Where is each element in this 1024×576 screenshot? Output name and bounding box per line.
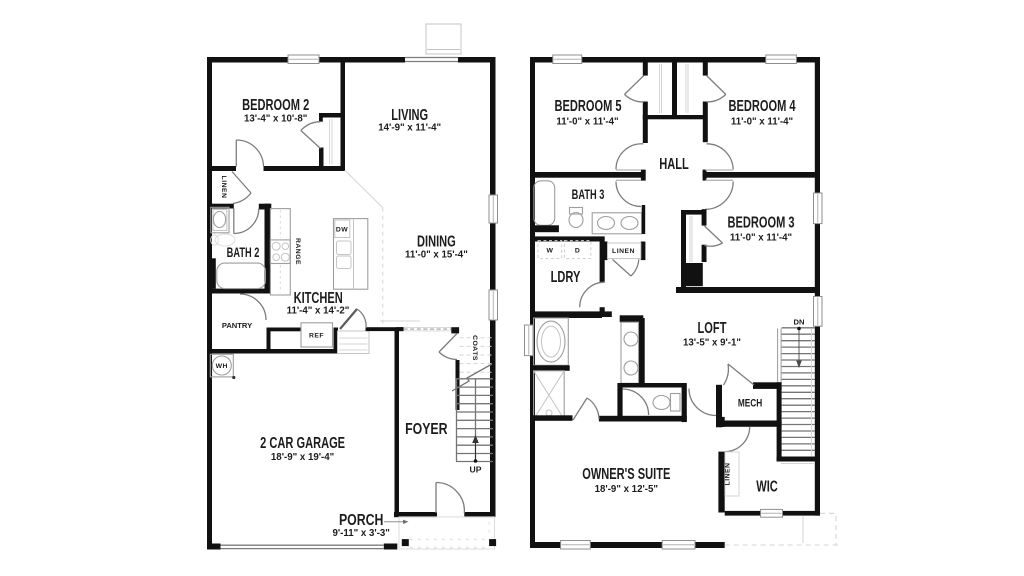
svg-text:FOYER: FOYER (405, 420, 447, 438)
svg-text:PORCH: PORCH (339, 511, 383, 529)
svg-text:18'-9" x 12'-5": 18'-9" x 12'-5" (595, 484, 658, 495)
svg-text:WIC: WIC (756, 478, 778, 495)
svg-text:HALL: HALL (659, 155, 689, 172)
svg-text:LINEN: LINEN (220, 176, 227, 199)
svg-text:18'-9" x 19'-4": 18'-9" x 19'-4" (271, 452, 334, 463)
svg-text:LOFT: LOFT (698, 319, 728, 336)
svg-text:D: D (575, 248, 580, 255)
svg-text:BEDROOM 5: BEDROOM 5 (554, 97, 622, 114)
svg-text:BATH 2: BATH 2 (227, 244, 260, 261)
svg-text:11'-0" x 11'-4": 11'-0" x 11'-4" (730, 233, 792, 244)
svg-text:13'-4" x 10'-8": 13'-4" x 10'-8" (244, 113, 307, 124)
svg-text:11'-0" x 11'-4": 11'-0" x 11'-4" (731, 117, 793, 128)
svg-text:BEDROOM 3: BEDROOM 3 (727, 214, 794, 231)
svg-text:UP: UP (470, 465, 482, 475)
svg-text:11'-0" x 15'-4": 11'-0" x 15'-4" (405, 250, 468, 261)
svg-text:W: W (546, 248, 553, 255)
svg-text:BEDROOM 2: BEDROOM 2 (242, 96, 309, 113)
svg-text:DW: DW (336, 227, 348, 234)
svg-text:REF: REF (309, 333, 324, 340)
svg-text:BATH 3: BATH 3 (572, 186, 605, 203)
svg-text:WH: WH (216, 363, 228, 370)
svg-text:14'-9" x 11'-4": 14'-9" x 11'-4" (378, 123, 441, 134)
svg-text:DN: DN (794, 318, 805, 327)
svg-text:RANGE: RANGE (294, 238, 301, 265)
svg-text:PANTRY: PANTRY (222, 321, 252, 330)
svg-text:2 CAR GARAGE: 2 CAR GARAGE (260, 434, 345, 451)
svg-text:11'-4" x 14'-2": 11'-4" x 14'-2" (287, 306, 350, 317)
svg-text:KITCHEN: KITCHEN (294, 289, 343, 306)
svg-text:LIVING: LIVING (391, 106, 428, 123)
svg-text:OWNER'S SUITE: OWNER'S SUITE (582, 465, 670, 482)
svg-text:LDRY: LDRY (551, 268, 581, 285)
svg-text:11'-0" x 11'-4": 11'-0" x 11'-4" (556, 117, 618, 128)
svg-text:9'-11" x 3'-3": 9'-11" x 3'-3" (332, 528, 389, 539)
svg-text:BEDROOM 4: BEDROOM 4 (728, 97, 796, 114)
svg-text:LINEN: LINEN (725, 463, 732, 486)
svg-text:COATS: COATS (471, 335, 478, 361)
svg-text:MECH: MECH (738, 397, 762, 410)
svg-text:13'-5" x 9'-1": 13'-5" x 9'-1" (683, 338, 741, 349)
svg-text:DINING: DINING (417, 233, 456, 250)
svg-text:LINEN: LINEN (612, 248, 635, 255)
